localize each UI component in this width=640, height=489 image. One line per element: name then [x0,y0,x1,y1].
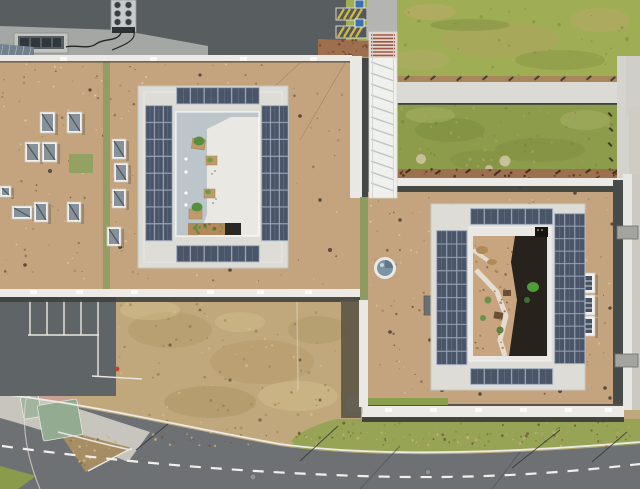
speckle [625,37,628,40]
speckle [356,39,357,40]
speckle [605,53,607,55]
speckle [38,81,40,83]
speckle [396,426,397,427]
skylight-shadow [595,318,598,338]
drain-cover [565,408,572,412]
speckle [310,413,313,416]
speckle [498,333,500,335]
speckle [316,405,317,406]
speckle [430,168,433,171]
field-path-line [297,302,298,390]
speckle [504,310,506,312]
speckle [456,168,458,170]
speckle [197,83,199,85]
speckle [532,201,534,203]
speckle [73,450,75,452]
speckle [595,164,597,166]
speckle [82,66,83,67]
speckle [390,307,391,308]
speckle [433,153,436,156]
speckle [600,256,602,258]
skylight-box [67,112,85,135]
speckle [129,231,130,232]
speckle [313,278,314,279]
speckle [305,435,308,438]
debris [388,330,392,334]
speckle [277,440,279,442]
speckle [517,134,519,136]
speckle [220,435,221,436]
speckle [561,439,563,441]
speckle [522,114,525,117]
speckle [598,175,600,177]
speckle [376,439,377,440]
speckle [392,333,394,335]
speckle [83,197,85,199]
speckle [212,65,214,67]
speckle [515,142,518,145]
speckle [186,434,187,435]
drain-cover [207,290,214,294]
speckle [173,311,176,314]
speckle [459,436,461,438]
speckle [208,347,210,349]
speckle [568,175,570,177]
speckle [167,317,170,320]
speckle [572,112,575,115]
speckle [33,228,34,229]
speckle [476,347,478,349]
speckle [614,430,615,431]
speckle [556,428,559,431]
drain-cover [605,408,612,412]
speckle [480,15,483,18]
speckle [600,440,602,442]
debris [608,396,611,399]
speckle [281,441,283,443]
speckle [579,174,581,176]
speckle [537,432,538,433]
speckle [524,144,527,147]
speckle [348,431,350,433]
drain-cover [385,408,392,412]
speckle [430,108,432,110]
speckle [204,313,205,314]
speckle [419,212,420,213]
speckle [499,318,502,321]
speckle [78,445,81,448]
speckle [482,174,484,176]
speckle [468,158,471,161]
speckle [522,438,523,439]
speckle [236,353,238,355]
speckle [293,356,296,359]
skylight-box [25,142,43,164]
speckle [335,255,337,257]
speckle [483,289,485,291]
speckle [222,339,224,341]
speckle [482,158,485,161]
hvac-unit [111,0,136,33]
speckle [571,142,574,145]
skylight-shadow [121,229,124,248]
speckle [393,300,395,302]
drain-cover [150,57,157,61]
speckle [362,45,364,47]
speckle [416,441,418,443]
speckle [265,346,267,348]
speckle [423,115,426,118]
speckle [2,92,3,93]
speckle [255,330,258,333]
speckle [134,233,135,234]
speckle [449,109,451,111]
speckle [434,121,437,124]
speckle [510,171,513,174]
speckle [402,174,405,177]
speckle [537,423,540,426]
speckle [276,431,279,434]
speckle [589,354,590,355]
speckle [508,174,511,177]
speckle [251,346,252,347]
speckle [223,346,224,347]
speckle [619,12,622,15]
speckle [344,52,345,53]
debris [258,418,261,421]
speckle [399,249,401,251]
speckle [475,342,477,344]
speckle [118,327,119,328]
speckle [455,430,458,433]
speckle [220,231,222,233]
speckle [430,152,432,154]
speckle [316,343,317,344]
skylight-shadow [126,141,129,161]
speckle [145,76,147,78]
speckle [247,328,250,331]
west-wall-shadow [341,300,361,418]
speckle [224,319,227,322]
speckle [338,43,341,46]
manhole-cover [250,474,256,480]
speckle [400,107,403,110]
speckle [119,84,122,87]
speckle [196,230,199,233]
right-east-shadow [613,180,623,408]
speckle [200,422,202,424]
speckle [603,295,604,296]
speckle [1,96,3,98]
speckle [70,197,72,199]
speckle [293,87,295,89]
debris [88,88,91,91]
speckle [613,21,616,24]
speckle [410,249,412,251]
speckle [465,164,468,167]
speckle [68,160,69,161]
left-parapet-north [0,55,352,61]
speckle [439,174,440,175]
olive-gutter-strip [360,197,368,301]
speckle [378,200,379,201]
speckle [114,440,117,443]
speckle [341,94,344,97]
skylight-shadow [595,297,598,317]
speckle [558,427,560,429]
speckle [281,274,282,275]
speckle [129,303,132,306]
drain-cover [30,290,37,294]
speckle [399,361,400,362]
speckle [448,441,450,443]
speckle [212,279,214,281]
speckle [412,212,413,213]
solar-array-rb-east [554,213,586,364]
speckle [423,66,425,68]
speckle [504,107,507,110]
speckle [221,226,223,228]
speckle [67,262,69,264]
speckle [475,245,476,246]
speckle [300,370,302,372]
speckle [445,74,447,76]
speckle [422,55,425,58]
speckle [203,376,206,379]
green-roof-edge-line [398,103,617,105]
speckle [479,434,480,435]
speckle [408,11,410,13]
speckle [49,194,50,195]
speckle [545,47,548,50]
speckle [207,337,209,339]
speckle [342,434,344,436]
solar-array-rb-north [470,208,553,225]
speckle [192,438,194,440]
speckle [132,175,133,176]
speckle [543,438,544,439]
speckle [590,38,593,41]
speckle [400,172,403,175]
speckle [519,442,522,445]
speckle [548,199,549,200]
speckle [385,440,387,442]
speckle [412,306,414,308]
speckle [367,432,368,433]
speckle [424,173,425,174]
speckle [128,90,130,92]
speckle [195,303,198,306]
speckle [207,316,208,317]
skylight-box [107,227,124,248]
speckle [97,97,99,99]
speckle [427,148,429,150]
speckle [312,166,315,169]
speckle [48,245,49,246]
speckle [203,388,204,389]
speckle [327,389,329,391]
speckle [628,434,631,437]
speckle [606,124,609,127]
speckle [244,74,246,76]
speckle [423,438,425,440]
speckle [499,329,502,332]
speckle [404,392,406,394]
speckle [222,404,225,407]
solar-array-lb-west [145,105,173,241]
skylight-shadow [595,275,598,295]
speckle [18,100,20,102]
speckle [261,64,263,66]
speckle [395,313,397,315]
speckle [95,77,97,79]
speckle [268,365,271,368]
speckle [598,343,600,345]
speckle [491,66,494,69]
speckle [509,199,511,201]
aerial-photo-canvas [0,0,640,489]
speckle [428,48,431,51]
speckle [466,433,468,435]
speckle [487,433,489,435]
speckle [568,55,570,57]
speckle [425,171,428,174]
speckle [296,391,298,393]
speckle [531,150,534,153]
pergola-walkway [369,32,397,198]
speckle [334,155,336,157]
solar-array-lb-east [261,105,289,241]
speckle [503,288,505,290]
speckle [89,458,91,460]
speckle [83,459,86,462]
speckle [523,437,525,439]
speckle [568,424,570,426]
speckle [77,252,78,253]
speckle [420,39,422,41]
skylight-shadow [128,165,131,184]
speckle [72,258,73,259]
solar-array-rb-west [436,230,468,365]
speckle [355,50,357,52]
speckle [413,298,414,299]
skylight-box [112,189,129,210]
speckle [387,438,389,440]
speckle [386,249,389,252]
speckle [172,441,174,443]
speckle [484,56,486,58]
speckle [423,42,425,44]
speckle [374,259,375,260]
speckle [70,440,72,442]
right-parapet-north [396,178,628,186]
speckle [520,436,522,438]
speckle [533,51,536,54]
speckle [336,211,338,213]
speckle [208,223,210,225]
speckle [64,221,65,222]
speckle [396,360,398,362]
skylight-shadow [57,144,60,164]
speckle [247,443,249,445]
speckle [484,38,487,41]
debris [23,263,27,267]
speckle [384,438,386,440]
speckle [19,149,20,150]
speckle [205,227,207,229]
speckle [417,19,420,22]
speckle [528,437,530,439]
speckle [264,338,266,340]
speckle [429,433,430,434]
speckle [360,432,361,433]
speckle [453,439,456,442]
speckle [293,95,296,98]
parapet-vent-box [617,226,638,239]
speckle [616,436,618,438]
speckle [35,190,37,192]
speckle [328,130,330,132]
speckle [16,244,18,246]
speckle [214,445,216,447]
speckle [496,270,499,273]
right-parapet-south-shadow [362,417,624,422]
speckle [484,445,486,447]
speckle [418,445,419,446]
speckle [383,444,384,445]
skylight-dome [374,257,396,279]
speckle [73,270,76,273]
speckle [165,65,166,66]
speckle [342,51,344,53]
speckle [196,274,198,276]
speckle [341,428,343,430]
speckle [162,345,164,347]
speckle [20,180,22,182]
speckle [455,23,457,25]
speckle [24,249,26,251]
speckle [504,273,507,276]
speckle [112,114,113,115]
speckle [178,392,181,395]
speckle [566,431,568,433]
speckle [495,140,498,143]
speckle [298,259,299,260]
speckle [460,443,461,444]
speckle [463,70,466,73]
speckle [403,366,404,367]
speckle [478,436,480,438]
skylight-shadow [82,114,85,135]
speckle [227,409,229,411]
speckle [475,438,478,441]
speckle [32,229,33,230]
speckle [585,259,587,261]
skylight-shadow [126,191,129,210]
speckle [581,160,583,162]
speckle [450,131,453,134]
speckle [489,432,492,435]
speckle [428,197,429,198]
speckle [114,462,117,465]
speckle [536,135,538,137]
speckle [506,301,508,303]
speckle [137,273,139,275]
speckle [565,126,567,128]
speckle [532,199,534,201]
speckle [328,52,329,53]
wheelchair-badge [355,0,364,8]
